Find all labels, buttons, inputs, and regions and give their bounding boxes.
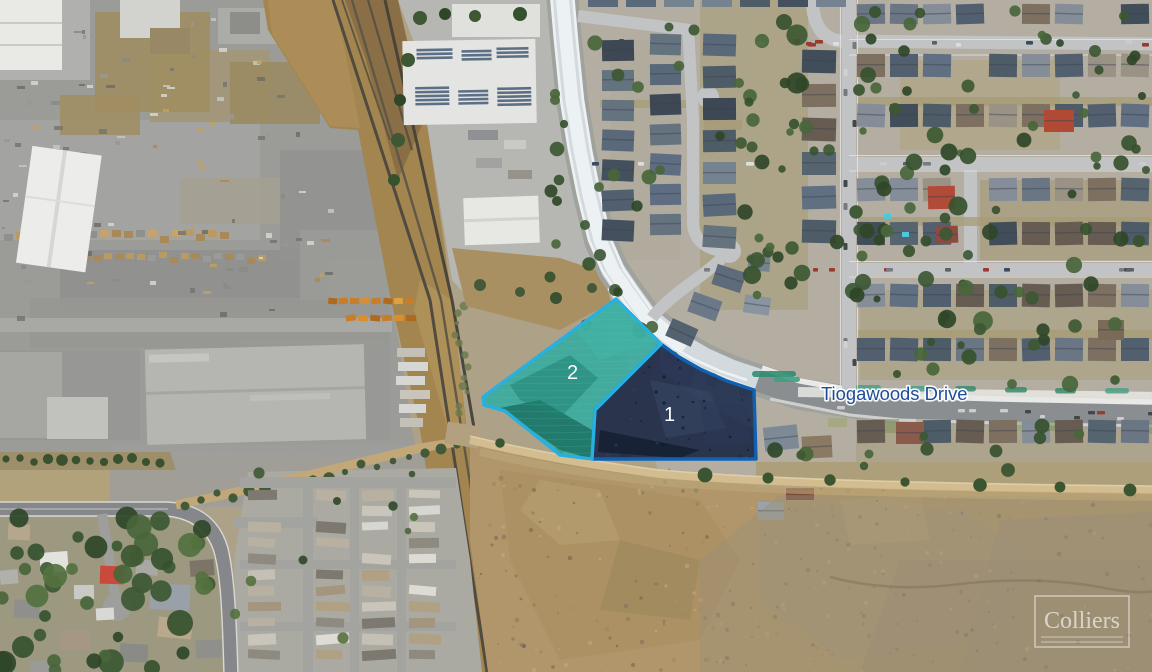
svg-text:Tiogawoods Drive: Tiogawoods Drive (821, 383, 968, 404)
svg-text:2: 2 (567, 362, 578, 384)
svg-text:Colliers: Colliers (1044, 608, 1120, 634)
svg-text:1: 1 (664, 404, 675, 426)
